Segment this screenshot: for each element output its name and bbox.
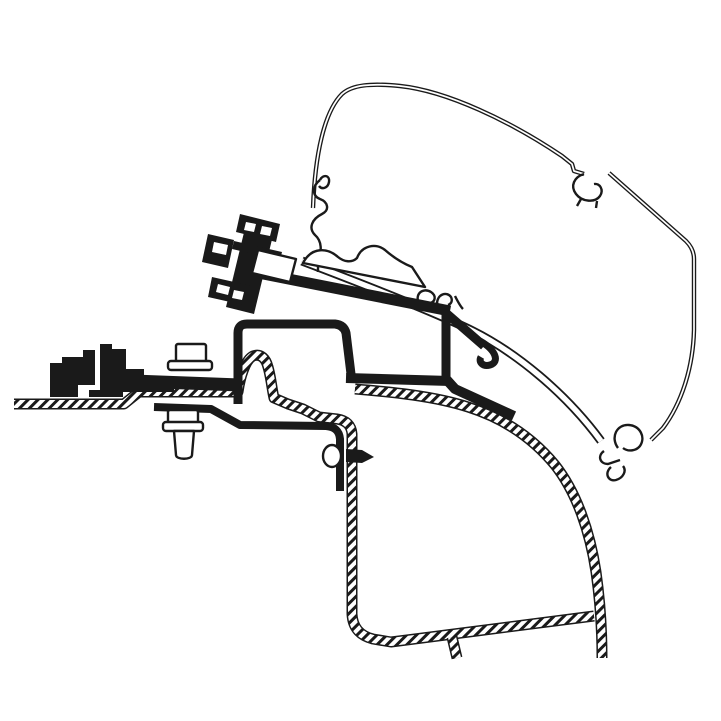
wall-fixing-screw	[346, 449, 374, 463]
screw-washer	[323, 445, 341, 467]
roof-nut-flange	[163, 422, 203, 431]
diagram-canvas	[0, 0, 721, 721]
adapter-channel	[238, 324, 351, 404]
roof-bolt-washer	[168, 361, 212, 370]
roof-bolt-shaft	[174, 431, 194, 459]
roof-panel-hatch	[14, 355, 594, 642]
case-outline-right	[609, 173, 694, 440]
roof-panel-edge	[14, 355, 594, 642]
roof-clamp-bolt-bottom	[163, 410, 203, 459]
adapter-foot-plate	[133, 381, 240, 385]
awning-case-bottom-clip	[600, 425, 642, 480]
adapter-clamp-bolts	[202, 214, 296, 314]
roof-mount-stepped-profile	[50, 344, 174, 397]
case-outline-top	[313, 85, 584, 208]
vehicle-roof-panel	[14, 355, 594, 642]
awning-adapter-diagram	[0, 0, 721, 721]
roof-bolt-head	[176, 344, 206, 362]
awning-case-top-clip	[573, 174, 601, 208]
interior-stub-hatch	[452, 637, 457, 658]
roof-clamp-bolt-top	[168, 344, 212, 370]
adapter-bottom-flange	[346, 378, 450, 381]
stepped-block-left	[50, 350, 95, 397]
